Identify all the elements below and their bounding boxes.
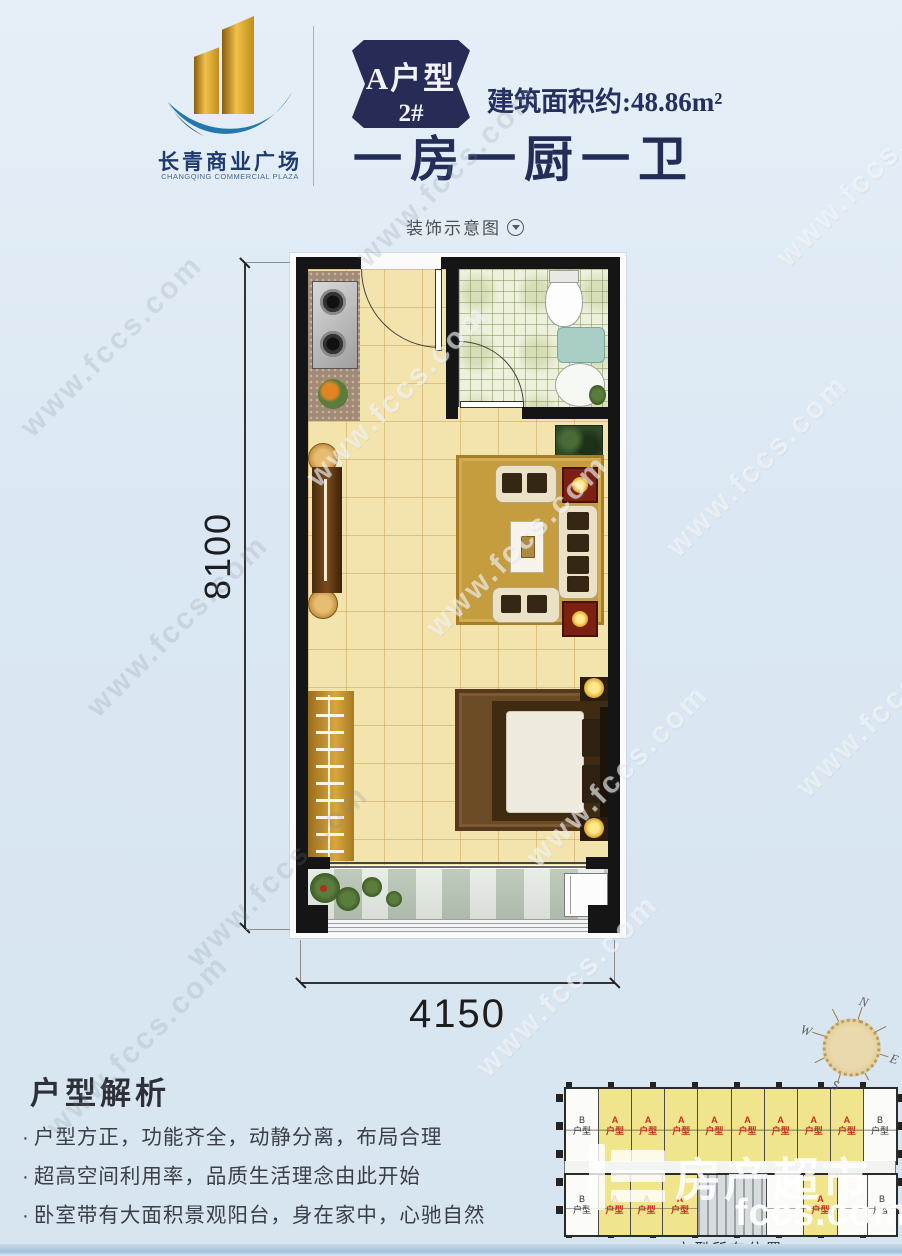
cushion bbox=[567, 556, 589, 574]
cushion bbox=[527, 595, 547, 613]
wardrobe bbox=[308, 691, 354, 861]
unit-b: B 户型 bbox=[867, 1175, 896, 1235]
sofa bbox=[558, 505, 598, 599]
cushion bbox=[567, 534, 589, 552]
watermark-text: www.fccs.com bbox=[40, 948, 236, 1144]
pillow bbox=[582, 719, 600, 757]
wardrobe-hangers bbox=[316, 697, 344, 855]
bullet-marker: · bbox=[22, 1126, 30, 1149]
chevron-down-circle-icon bbox=[507, 219, 524, 236]
pillow bbox=[582, 765, 600, 803]
badge-unit-type: A户型 bbox=[352, 53, 470, 98]
table-lamp bbox=[572, 477, 588, 493]
headboard bbox=[600, 707, 608, 817]
logo: 长青商业广场 CHANGQING COMMERCIAL PLAZA bbox=[150, 12, 310, 182]
cushion bbox=[502, 473, 522, 493]
wall-bathroom-left bbox=[446, 269, 458, 419]
bullet-marker: · bbox=[22, 1165, 30, 1188]
extension-line bbox=[246, 929, 294, 930]
bullet-text: 超高空间利用率，品质生活理念由此开始 bbox=[34, 1165, 421, 1188]
stove-burner bbox=[320, 331, 346, 357]
cushion bbox=[527, 473, 547, 493]
unit-b: B 户型 bbox=[566, 1089, 598, 1163]
floor-area-text: 建筑面积约:48.86m² bbox=[487, 80, 722, 119]
watermark-text: www.fccs.com bbox=[770, 78, 902, 274]
compass-rose bbox=[815, 1011, 888, 1084]
wall-top-right bbox=[441, 257, 620, 269]
stove-burner bbox=[320, 289, 346, 315]
unit-a: A 户型 bbox=[697, 1089, 730, 1163]
key-plan-columns-left bbox=[556, 1094, 563, 1228]
balcony-plant bbox=[336, 887, 360, 911]
watermark-text: www.fccs.com bbox=[660, 368, 856, 564]
unit-b: B 户型 bbox=[566, 1175, 598, 1235]
floorplan bbox=[290, 253, 626, 938]
balcony-plant bbox=[386, 891, 402, 907]
unit-a: A 户型 bbox=[598, 1175, 630, 1235]
watermark-text: www.fccs.com bbox=[790, 608, 902, 804]
balcony-slider-line bbox=[308, 866, 608, 868]
balcony-plant bbox=[362, 877, 382, 897]
kitchen-plant bbox=[318, 379, 348, 409]
unit-a: A 户型 bbox=[662, 1175, 697, 1235]
unit-a: A 户型 bbox=[803, 1175, 837, 1235]
washer-lid-line bbox=[570, 876, 571, 914]
watermark-text: www.fccs.com bbox=[80, 528, 276, 724]
analysis-list: ·户型方正，功能齐全，动静分离，布局合理 ·超高空间利用率，品质生活理念由此开始… bbox=[22, 1120, 542, 1237]
decor-note: 装饰示意图 bbox=[406, 214, 524, 239]
coffee-table bbox=[510, 521, 544, 573]
unit-a: A 户型 bbox=[630, 1175, 662, 1235]
extension-line bbox=[614, 940, 615, 982]
elevator-stair-core bbox=[697, 1175, 766, 1235]
unit-cell bbox=[766, 1175, 803, 1235]
decor-label: 装饰示意图 bbox=[406, 219, 501, 238]
table-decor bbox=[521, 536, 535, 558]
wall-right bbox=[608, 257, 620, 933]
wall-stub bbox=[586, 857, 608, 869]
logo-swoosh bbox=[164, 90, 296, 148]
tv-cabinet bbox=[312, 467, 342, 593]
bullet-text: 卧室带有大面积景观阳台，身在家中，心驰自然 bbox=[34, 1204, 486, 1227]
balcony-railing-window bbox=[308, 919, 608, 933]
table-lamp bbox=[572, 611, 588, 627]
balcony-slider-line bbox=[308, 862, 608, 864]
unit-a: A 户型 bbox=[830, 1089, 863, 1163]
unit-a: A 户型 bbox=[797, 1089, 830, 1163]
compass-north: N bbox=[857, 993, 870, 1011]
wall-left bbox=[296, 257, 308, 933]
extension-line bbox=[300, 940, 301, 982]
analysis-title: 户型解析 bbox=[30, 1068, 170, 1113]
key-plan-top-wing: B 户型 A 户型 A 户型 A 户型 A 户型 A 户型 A 户型 A 户型 … bbox=[564, 1087, 898, 1165]
header-divider bbox=[313, 26, 314, 186]
bullet-marker: · bbox=[22, 1204, 30, 1227]
mattress bbox=[506, 711, 584, 813]
cushion bbox=[501, 595, 521, 613]
key-plan-bottom-wing: B 户型 A 户型 A 户型 A 户型 A 户型 B 户型 bbox=[564, 1173, 898, 1237]
tv-screen bbox=[324, 479, 327, 581]
end-table bbox=[562, 467, 598, 503]
bench-seat bbox=[492, 587, 560, 623]
cushion bbox=[567, 576, 589, 592]
unit-type-badge: A户型 2# bbox=[352, 40, 470, 128]
compass-west: W bbox=[798, 1021, 813, 1040]
dimension-width-label: 4150 bbox=[300, 992, 615, 1037]
compass-south: S bbox=[830, 1077, 841, 1094]
bedside-lamp bbox=[584, 818, 604, 838]
analysis-bullet: ·卧室带有大面积景观阳台，身在家中，心驰自然 bbox=[22, 1198, 542, 1228]
analysis-bullet: ·超高空间利用率，品质生活理念由此开始 bbox=[22, 1159, 542, 1189]
logo-subtitle: CHANGQING COMMERCIAL PLAZA bbox=[150, 172, 310, 181]
wall-corner-br bbox=[588, 905, 620, 933]
compass-east: E bbox=[888, 1050, 901, 1068]
dimension-line-vertical bbox=[244, 263, 246, 929]
unit-a: A 户型 bbox=[764, 1089, 797, 1163]
watermark-text: www.fccs.com bbox=[14, 248, 210, 444]
unit-a: A 户型 bbox=[598, 1089, 631, 1163]
page-title: 一房一厨一卫 bbox=[353, 120, 695, 191]
unit-cell bbox=[837, 1175, 867, 1235]
unit-a: A 户型 bbox=[631, 1089, 664, 1163]
wall-corner-bl bbox=[296, 905, 328, 933]
extension-line bbox=[246, 262, 294, 263]
entrance-door-leaf bbox=[435, 269, 442, 351]
analysis-bullet: ·户型方正，功能齐全，动静分离，布局合理 bbox=[22, 1120, 542, 1150]
wall-bathroom-bottom bbox=[522, 407, 608, 419]
unit-a: A 户型 bbox=[664, 1089, 697, 1163]
bullet-text: 户型方正，功能齐全，动静分离，布局合理 bbox=[34, 1126, 443, 1149]
dimension-line-horizontal bbox=[300, 982, 615, 984]
bathroom-door-leaf bbox=[460, 401, 524, 408]
wall-stub bbox=[308, 857, 330, 869]
dimension-height-label: 8100 bbox=[197, 496, 239, 616]
toilet-tank bbox=[549, 270, 579, 283]
tv-stand-end bbox=[308, 589, 338, 619]
bottom-strip bbox=[0, 1244, 902, 1256]
balcony-flower bbox=[320, 885, 327, 892]
unit-a: A 户型 bbox=[731, 1089, 764, 1163]
loveseat bbox=[495, 465, 557, 503]
bath-basin bbox=[557, 327, 605, 363]
floorplan-inner bbox=[296, 257, 620, 933]
end-table bbox=[562, 601, 598, 637]
key-plan: B 户型 A 户型 A 户型 A 户型 A 户型 A 户型 A 户型 A 户型 … bbox=[556, 1082, 902, 1240]
cushion bbox=[567, 512, 589, 530]
corridor bbox=[564, 1161, 896, 1173]
bedside-lamp bbox=[584, 678, 604, 698]
bathroom-plant bbox=[589, 385, 606, 405]
flyer-page: 长青商业广场 CHANGQING COMMERCIAL PLAZA A户型 2#… bbox=[0, 0, 902, 1256]
